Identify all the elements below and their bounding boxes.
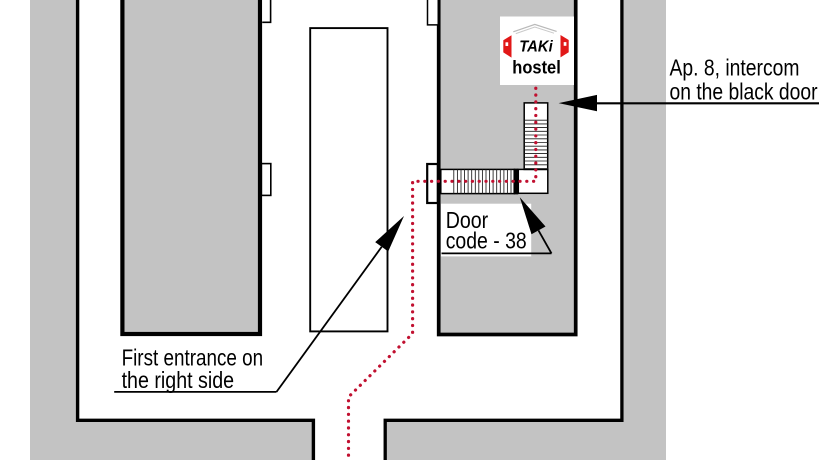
- svg-text:hostel: hostel: [512, 57, 561, 77]
- svg-text:the right side: the right side: [122, 367, 235, 393]
- svg-text:Ap. 8, intercom: Ap. 8, intercom: [670, 55, 800, 81]
- svg-text:on the black door: on the black door: [670, 78, 818, 104]
- svg-text:code - 38: code - 38: [446, 228, 527, 254]
- svg-text:TAKi: TAKi: [519, 39, 553, 56]
